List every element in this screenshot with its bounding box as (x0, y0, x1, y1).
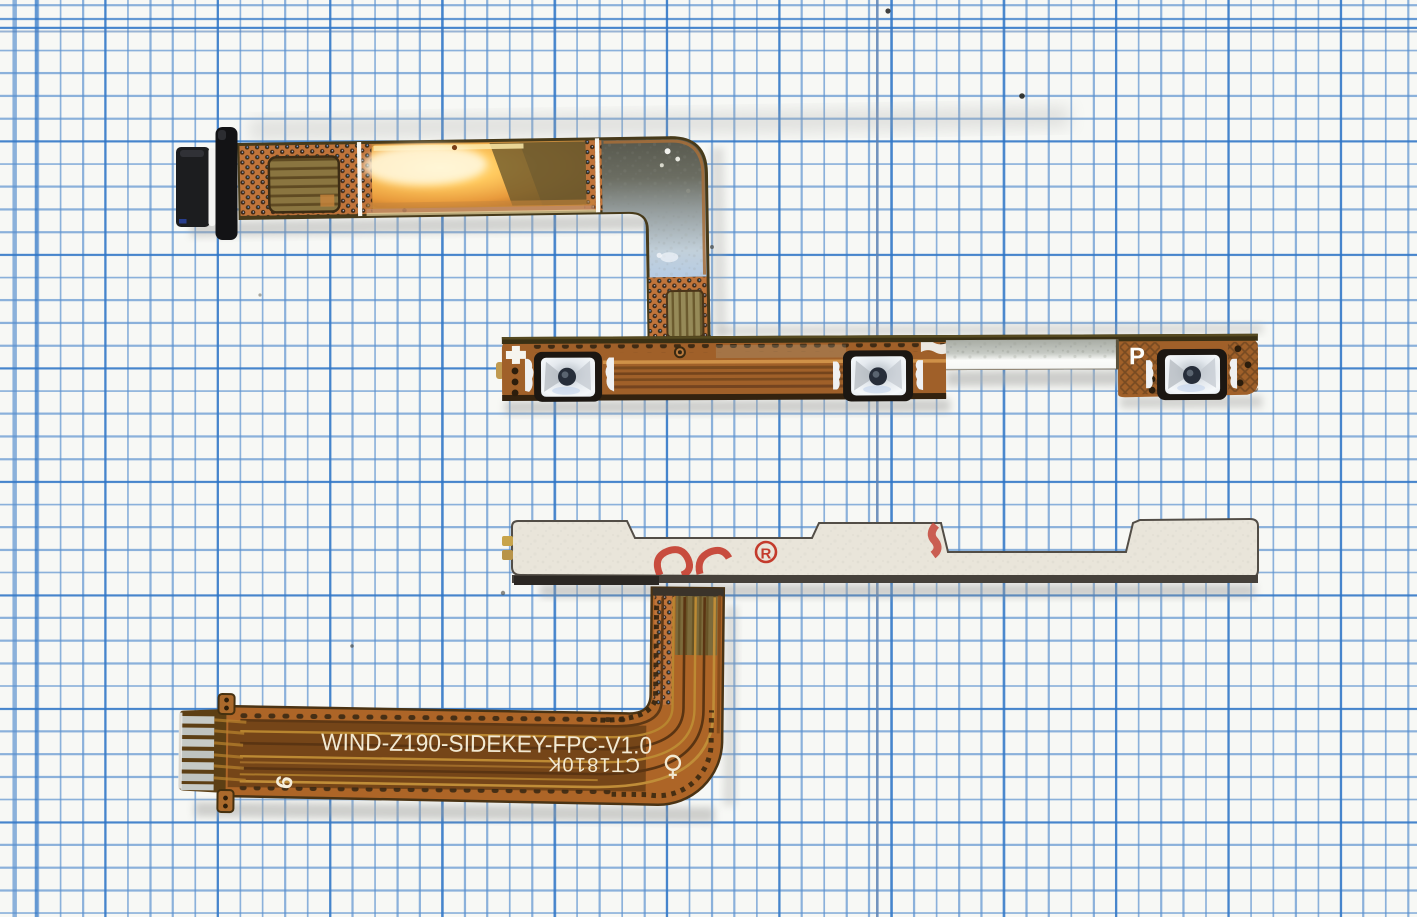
svg-text:P: P (1129, 343, 1145, 370)
svg-text:CT1810K: CT1810K (547, 753, 640, 776)
svg-text:R: R (761, 546, 772, 563)
